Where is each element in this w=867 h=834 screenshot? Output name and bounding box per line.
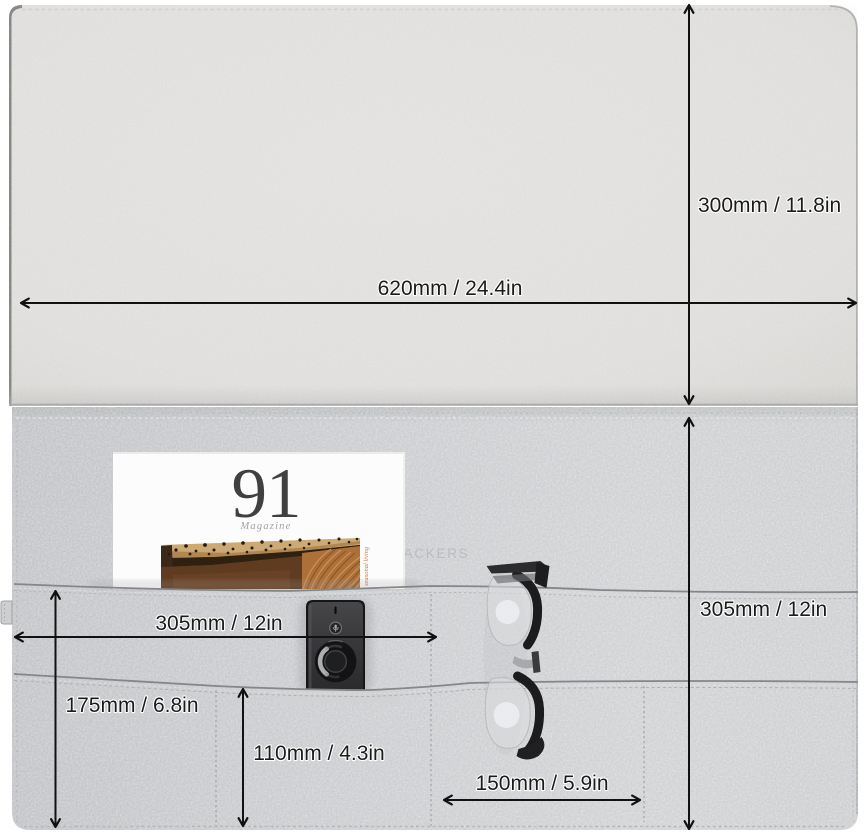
svg-text:300mm / 11.8in: 300mm / 11.8in <box>698 194 841 217</box>
svg-text:305mm / 12in: 305mm / 12in <box>700 598 827 621</box>
svg-text:175mm / 6.8in: 175mm / 6.8in <box>65 694 198 717</box>
svg-text:620mm / 24.4in: 620mm / 24.4in <box>378 277 523 300</box>
svg-text:305mm / 12in: 305mm / 12in <box>155 612 282 635</box>
svg-text:150mm / 5.9in: 150mm / 5.9in <box>475 772 608 795</box>
svg-text:seasonal living: seasonal living <box>363 546 370 586</box>
svg-text:Magazine: Magazine <box>239 521 291 532</box>
svg-text:110mm / 4.3in: 110mm / 4.3in <box>253 742 385 765</box>
